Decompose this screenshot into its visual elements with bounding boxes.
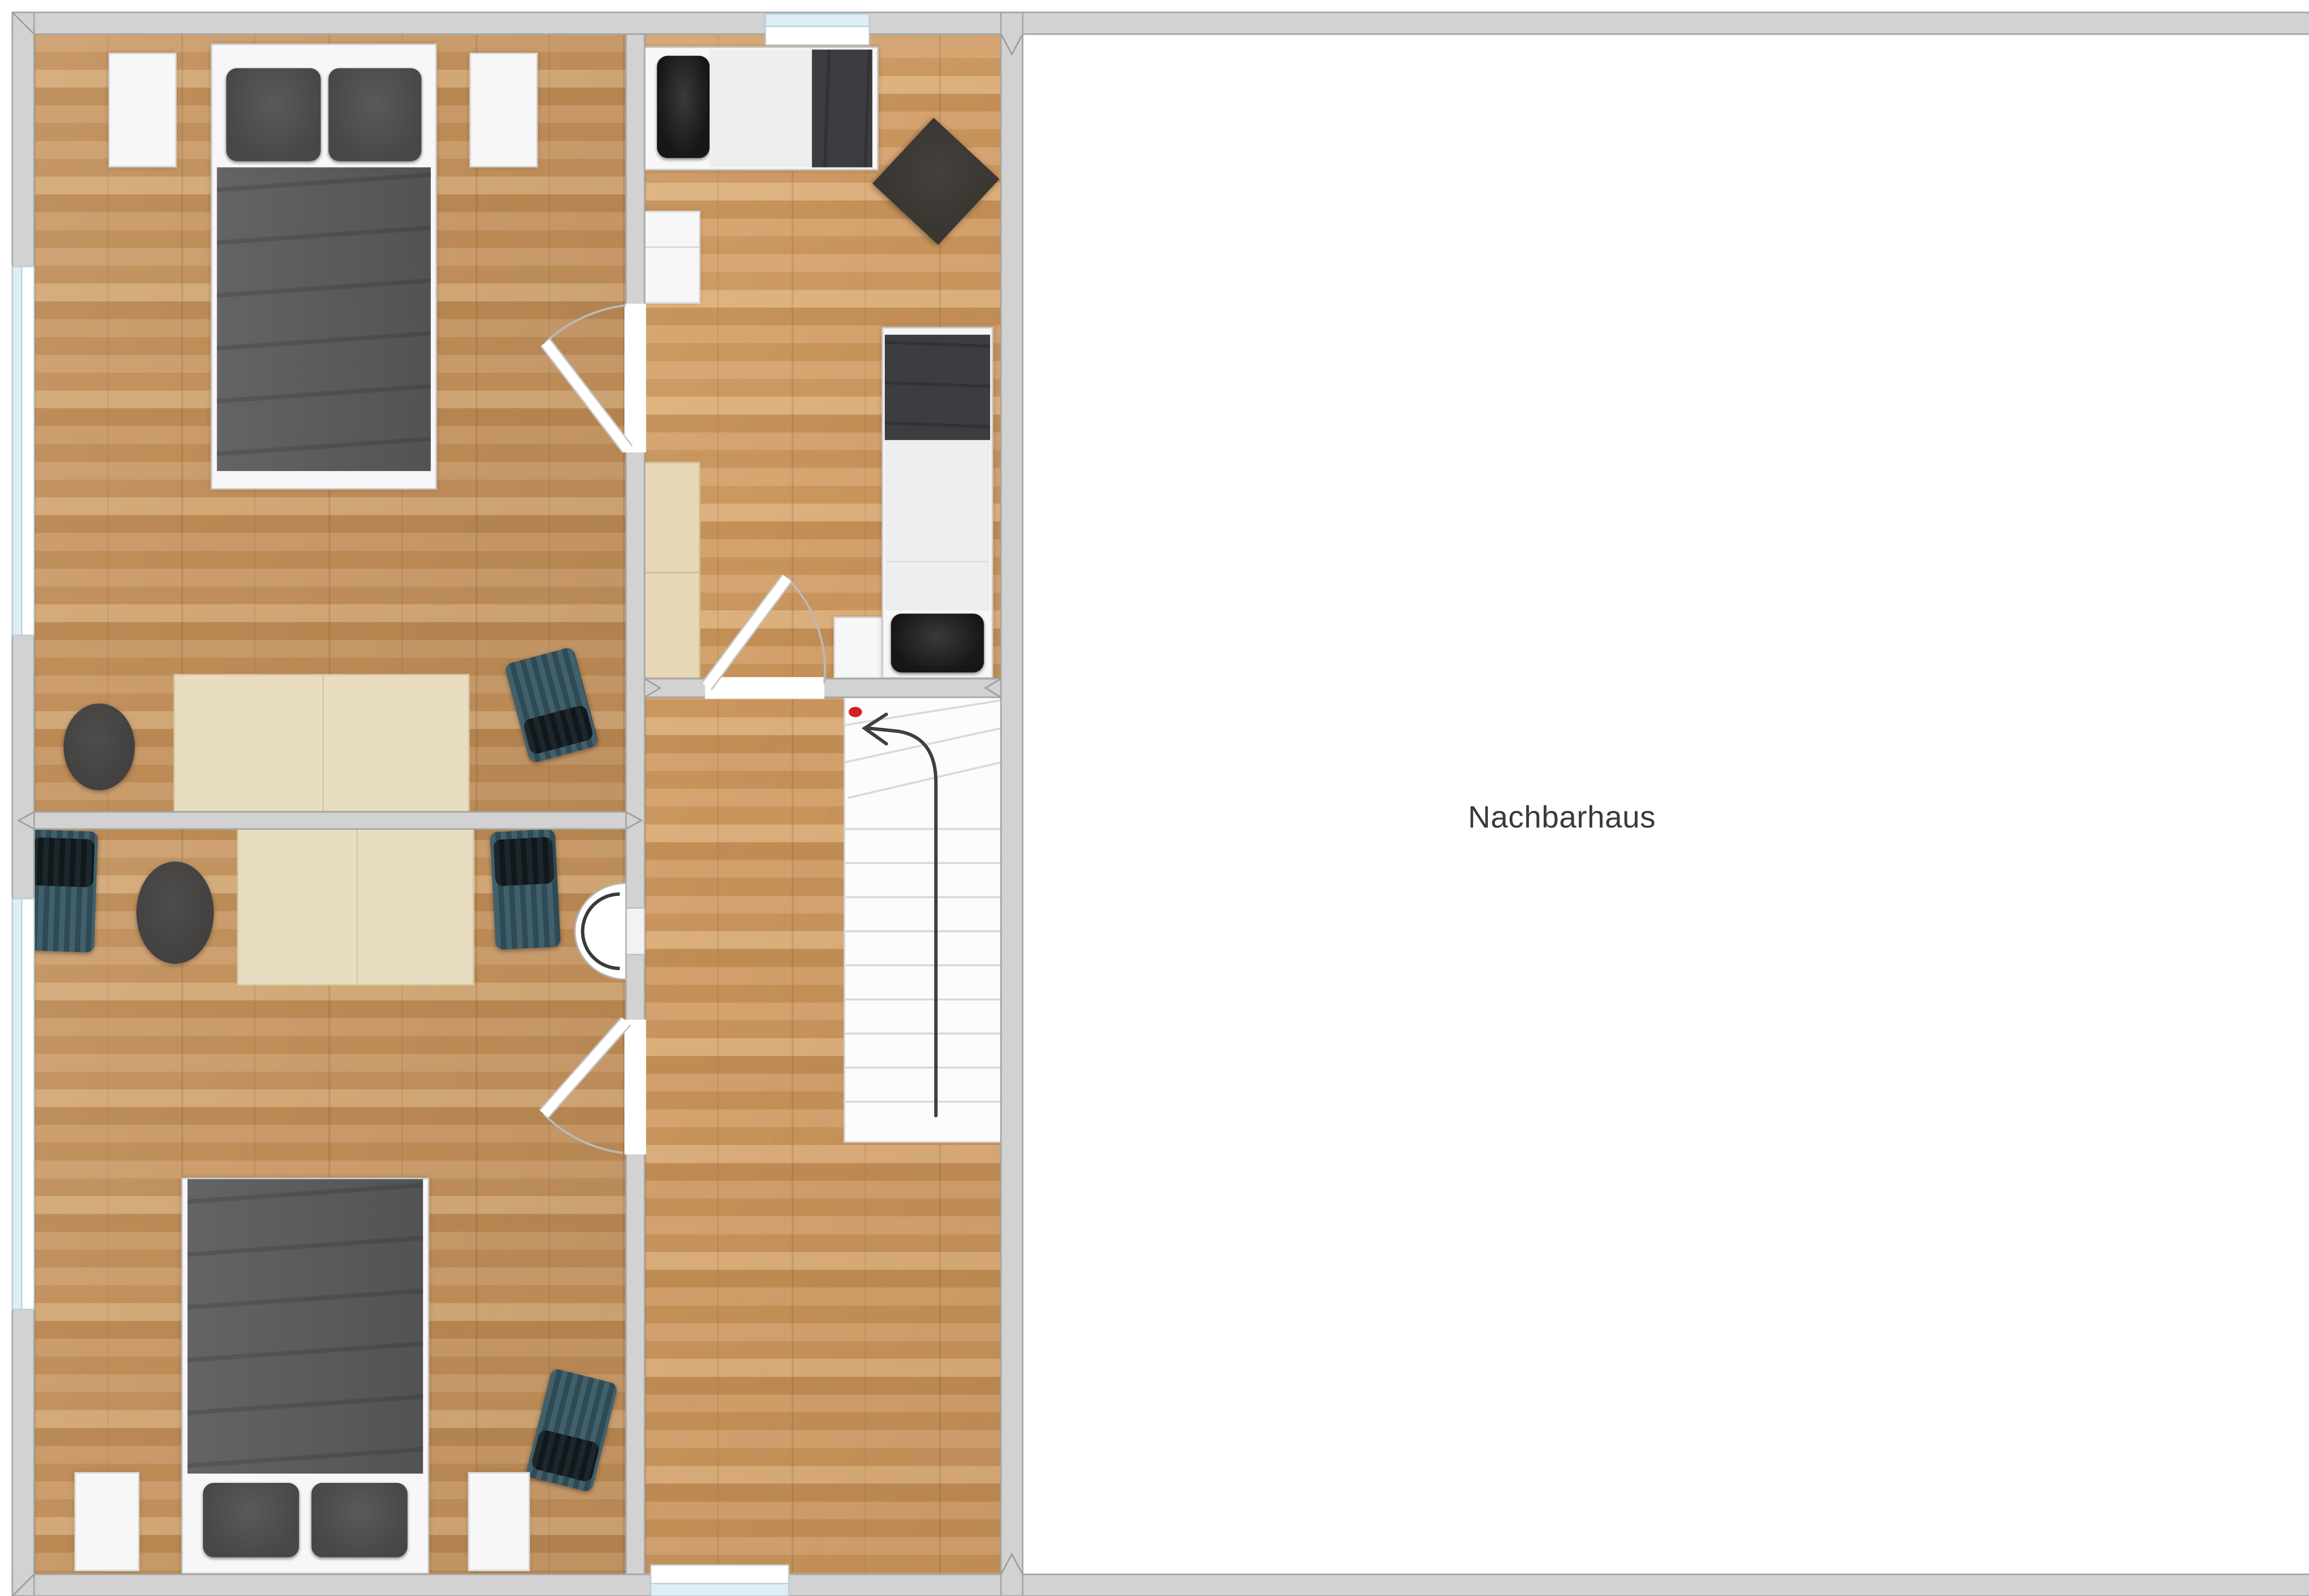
wall-neighbor-divider bbox=[1001, 12, 1023, 1596]
nightstand bbox=[470, 53, 538, 167]
single-bed-vertical bbox=[882, 327, 993, 679]
floor-plan: Nachbarhaus bbox=[0, 0, 2309, 1596]
office-chair bbox=[26, 829, 98, 953]
blanket bbox=[885, 335, 990, 440]
pillow bbox=[891, 614, 984, 673]
pillow bbox=[657, 56, 710, 158]
duvet bbox=[187, 1179, 423, 1474]
double-bed bbox=[211, 43, 437, 490]
pouf bbox=[136, 862, 214, 964]
window-left-lower bbox=[12, 899, 34, 1309]
pouf bbox=[64, 703, 135, 790]
window-left-upper bbox=[12, 266, 34, 635]
chair-back bbox=[493, 836, 555, 886]
pillow bbox=[226, 68, 321, 161]
wall-horizontal-left bbox=[34, 812, 626, 829]
wall-outer-top bbox=[12, 12, 2309, 34]
desk bbox=[237, 828, 474, 985]
desk bbox=[174, 674, 470, 812]
pillow bbox=[328, 68, 421, 161]
chair-back bbox=[530, 1429, 601, 1483]
cabinet-white bbox=[641, 211, 701, 303]
nightstand bbox=[834, 617, 885, 678]
nightstand bbox=[109, 53, 177, 167]
cabinet-tan bbox=[640, 462, 701, 679]
nightstand bbox=[74, 1472, 139, 1572]
double-bed bbox=[181, 1178, 429, 1574]
mattress bbox=[885, 440, 990, 611]
blanket bbox=[812, 49, 872, 167]
wall-outer-bottom bbox=[12, 1574, 2309, 1596]
nightstand bbox=[468, 1472, 530, 1572]
duvet bbox=[217, 167, 431, 471]
chair-back bbox=[31, 837, 95, 887]
wall-outer-left bbox=[12, 12, 34, 1596]
neighbor-house-label: Nachbarhaus bbox=[1364, 801, 1760, 837]
pillow bbox=[203, 1483, 299, 1557]
chair-back bbox=[522, 704, 594, 755]
single-bed-horizontal bbox=[641, 47, 878, 170]
office-chair bbox=[490, 829, 561, 950]
mattress bbox=[710, 49, 812, 167]
pillow bbox=[311, 1483, 407, 1557]
